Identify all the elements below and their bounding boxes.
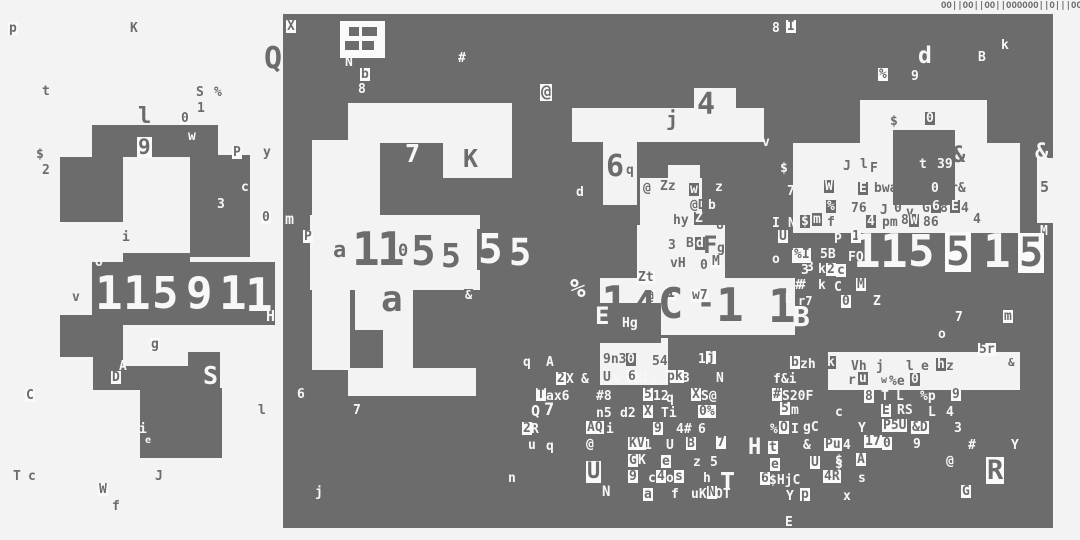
glyph: 1 — [95, 270, 123, 316]
dark-block — [140, 388, 222, 458]
glyph: g — [150, 338, 160, 351]
glyph: E — [858, 182, 868, 195]
glyph: j — [315, 486, 323, 499]
glyph: Z — [873, 295, 881, 308]
glyph: e — [921, 360, 929, 373]
glyph: 2 — [42, 164, 50, 177]
glyph: 9 — [951, 388, 961, 401]
glyph: k — [1001, 39, 1009, 52]
glyph: R — [531, 423, 539, 436]
glyph: 2 — [556, 372, 566, 385]
glyph: 3 — [668, 239, 676, 252]
glyph: K — [130, 22, 138, 35]
glyph: & — [464, 289, 473, 301]
glyph: OT — [715, 488, 731, 501]
glyph: C — [834, 281, 842, 294]
glyph: w — [689, 183, 699, 196]
glyph: F — [870, 162, 878, 175]
glyph: & — [1008, 357, 1015, 368]
glyph: # — [458, 52, 466, 65]
glyph: 4# — [676, 423, 692, 436]
glyph: 1 — [698, 353, 706, 366]
dark-block — [60, 315, 93, 357]
glyph: O — [779, 421, 789, 434]
glyph: d — [918, 45, 932, 68]
glyph: 7 — [544, 402, 554, 419]
glyph: U — [666, 439, 674, 452]
glyph: 7 — [716, 436, 726, 449]
glyph: J — [843, 160, 851, 173]
glyph: 5 — [152, 272, 179, 316]
glyph: t — [768, 441, 778, 454]
glyph: 54 — [652, 355, 668, 368]
glyph: 8 — [772, 22, 780, 35]
glyph: 0 — [398, 243, 408, 260]
glyph: e — [145, 436, 151, 446]
glyph: $ — [36, 148, 44, 161]
glyph: 3 — [801, 264, 809, 277]
glyph: x — [843, 490, 851, 503]
glyph: $ — [800, 215, 810, 228]
glyph: 1 — [123, 270, 151, 316]
glyph: H — [748, 437, 761, 459]
glyph: e — [661, 455, 671, 468]
glyph: 39 — [936, 158, 954, 171]
glyph: y — [263, 146, 271, 159]
glyph: T — [881, 390, 889, 403]
glyph: q — [523, 356, 531, 369]
glyph: t — [918, 158, 928, 171]
glyph: 6 — [297, 388, 305, 401]
glyph: 3 — [217, 198, 225, 211]
glyph: p — [800, 488, 810, 501]
glyph: U — [586, 461, 601, 483]
glyph: 5 — [643, 388, 653, 401]
glyph: A — [856, 453, 866, 466]
glyph: P5U — [882, 419, 907, 432]
glyph: % — [770, 423, 778, 436]
glyph: gC — [803, 421, 819, 434]
glyph: 0 — [882, 437, 892, 450]
glyph: t — [42, 85, 50, 98]
dark-block — [92, 125, 218, 157]
glyph: 9 — [628, 470, 638, 483]
glyph: & — [581, 373, 589, 386]
glyph: 5 — [908, 230, 935, 274]
glyph: N — [345, 56, 353, 69]
glyph: S — [203, 363, 218, 388]
light-block — [348, 103, 512, 143]
glyph: uK — [691, 488, 707, 501]
glyph: B — [686, 237, 694, 250]
glyph: D — [785, 293, 793, 306]
glyph: b — [360, 68, 370, 81]
glyph: 9 — [913, 438, 921, 451]
glyph: k — [818, 263, 826, 276]
glyph: 5 — [508, 234, 532, 271]
glyph: C — [25, 389, 35, 402]
glyph: # — [795, 279, 803, 292]
glyph: c — [28, 470, 36, 483]
glyph: s — [858, 472, 866, 485]
glyph: M — [1040, 225, 1048, 238]
glyph: 0% — [698, 405, 716, 418]
glyph: 7 — [787, 185, 795, 198]
glyph: X — [643, 405, 653, 418]
glyph: o — [666, 472, 674, 485]
glyph: a — [333, 240, 346, 262]
window-pane — [345, 41, 359, 50]
glyph: o — [938, 328, 946, 341]
glyph: @ — [540, 84, 552, 101]
glyph: I — [786, 20, 796, 33]
glyph: a — [643, 488, 653, 501]
glyph: 8 — [358, 83, 366, 96]
glyph: $ — [835, 458, 843, 471]
glyph: u — [858, 372, 868, 385]
glyph: a — [381, 282, 403, 318]
glyph: G — [922, 202, 930, 215]
glyph: E — [595, 304, 609, 328]
glyph: RS — [897, 404, 913, 417]
glyph: 0 — [700, 259, 708, 272]
glyph: zh — [800, 358, 816, 371]
glyph: &Ly — [635, 372, 658, 385]
glyph: 4 — [697, 90, 715, 120]
glyph: $HjC — [769, 474, 800, 487]
glyph: 5 — [1040, 180, 1049, 195]
glyph: b — [707, 199, 717, 212]
glyph: 1 — [983, 228, 1011, 274]
glyph: 7 — [353, 404, 361, 417]
glyph: S@ — [701, 390, 717, 403]
glyph: 1 — [219, 270, 247, 316]
glyph: 5 — [441, 239, 461, 272]
glyph: 5r — [978, 343, 996, 356]
glyph: T — [13, 470, 21, 483]
glyph: E — [881, 404, 891, 417]
glyph: 5 — [780, 402, 790, 415]
glyph: 9n3 — [603, 353, 626, 366]
glyph: v — [72, 291, 80, 304]
glyph: & — [952, 145, 965, 167]
glyph: W — [98, 483, 108, 496]
glyph: f — [827, 216, 835, 229]
glyph: 9 — [137, 137, 152, 158]
glyph: z — [693, 456, 701, 469]
glyph: #8 — [596, 390, 612, 403]
glyph: X — [286, 20, 296, 33]
glyph: v — [613, 372, 621, 385]
glyph: r& — [950, 182, 966, 195]
glyph: D — [111, 371, 121, 384]
glyph: &D — [911, 421, 929, 434]
glyph: Q — [531, 404, 540, 419]
glitch-canvas: pKtS%1l0w$29Pyc30iovgADSCieJlTcWfQ115911… — [0, 0, 1080, 540]
glyph: - — [697, 289, 715, 319]
glyph: E — [950, 200, 960, 213]
glyph: # — [968, 439, 976, 452]
glyph: 76 — [851, 202, 867, 215]
glyph: j — [706, 351, 716, 364]
glyph: H — [266, 309, 275, 324]
glyph: 9 — [186, 272, 213, 316]
glyph: 5B — [820, 248, 836, 261]
glyph: l — [860, 158, 868, 171]
glyph: @ — [946, 455, 954, 468]
glyph: & — [803, 439, 811, 452]
glyph: & — [1035, 142, 1048, 164]
glyph: w — [881, 376, 887, 386]
glyph: u — [528, 439, 536, 452]
glyph: K — [638, 454, 646, 467]
glyph: 8 — [716, 219, 724, 232]
glyph: W — [896, 160, 904, 173]
glyph: X — [691, 388, 701, 401]
glyph: 5 — [710, 456, 718, 469]
glyph: b — [790, 356, 800, 369]
glyph: S — [196, 86, 204, 99]
glyph: 0 — [626, 353, 636, 366]
glyph: 8 — [864, 390, 874, 403]
glyph: X — [566, 373, 574, 386]
glyph: m — [1003, 310, 1013, 323]
glyph: N — [602, 485, 610, 499]
glyph: % — [570, 276, 586, 302]
glyph: %e — [889, 375, 905, 388]
glyph: M — [711, 255, 721, 268]
glyph: c — [835, 406, 843, 419]
glyph: 0 — [261, 211, 271, 224]
glyph: K — [463, 146, 478, 171]
glyph: q — [626, 164, 634, 177]
glyph: Z — [694, 212, 704, 225]
glyph: P — [834, 233, 842, 246]
glyph: v — [762, 136, 770, 149]
window-pane — [362, 27, 377, 36]
glyph: 4 — [843, 439, 851, 452]
glyph: r7 — [798, 295, 812, 307]
window-pane — [349, 27, 359, 36]
glyph: P — [232, 146, 242, 159]
glyph: N — [788, 217, 796, 230]
glyph: z — [946, 360, 954, 373]
glyph: 5 — [945, 232, 971, 272]
glyph: 1 — [644, 439, 652, 452]
glyph: l — [258, 404, 266, 417]
glyph: B — [978, 51, 986, 64]
glyph: i — [122, 231, 130, 244]
light-block — [348, 368, 476, 396]
glyph: c — [241, 181, 249, 194]
glyph: r — [848, 374, 856, 387]
glyph: OO||OO||OO||OOOOOO||O|||OO||OO|O — [941, 2, 1080, 11]
glyph: 1 — [880, 228, 908, 274]
glyph: U — [603, 371, 611, 384]
glyph: $ — [890, 115, 898, 128]
glyph: f&i — [773, 373, 796, 386]
glyph: 1 — [853, 228, 881, 274]
glyph: W — [824, 180, 834, 193]
glyph: h — [936, 358, 946, 371]
glyph: % — [826, 200, 836, 213]
glyph: j — [876, 360, 884, 373]
glyph: 4 — [656, 470, 666, 483]
glyph: 8 — [940, 202, 948, 215]
glyph: Q — [264, 44, 282, 74]
glyph: U — [810, 456, 820, 469]
glyph: 0 — [180, 112, 190, 125]
glyph: d2 — [620, 407, 636, 420]
glyph: c — [648, 472, 656, 485]
glyph: %p — [920, 390, 936, 403]
glyph: d — [576, 186, 584, 199]
glyph: C — [658, 283, 683, 325]
glyph: n5 — [596, 407, 612, 420]
light-block — [383, 325, 413, 370]
glyph: KV — [628, 437, 646, 450]
glyph: M — [856, 278, 866, 291]
dark-block — [92, 325, 123, 355]
glyph: AQ — [586, 421, 604, 434]
glyph: G — [961, 485, 971, 498]
glyph: L — [928, 406, 936, 419]
dark-block — [413, 290, 443, 325]
glyph: P — [303, 230, 313, 243]
glyph: $ — [780, 162, 788, 175]
glyph: 6 — [606, 152, 624, 182]
glyph: 1 — [352, 226, 380, 272]
glyph: m — [812, 213, 822, 226]
glyph: E — [785, 516, 793, 529]
glyph: z — [714, 181, 724, 194]
glyph: 17 — [864, 435, 882, 448]
glyph: m — [791, 404, 799, 417]
glyph: 3 — [682, 372, 690, 385]
glyph: l — [138, 106, 151, 128]
glyph: Y — [786, 490, 794, 503]
window-pane — [362, 41, 374, 50]
glyph: % — [878, 68, 888, 81]
glyph: h — [703, 472, 711, 485]
glyph: Zz — [660, 180, 676, 193]
glyph: J — [155, 470, 163, 483]
glyph: L — [896, 390, 904, 403]
glyph: pk — [666, 370, 684, 383]
glyph: 7 — [405, 141, 420, 166]
glyph: A — [546, 356, 554, 369]
glyph: w — [188, 130, 196, 143]
glyph: f — [671, 488, 679, 501]
glyph: Y — [1011, 439, 1019, 452]
glyph: 0 — [925, 112, 935, 125]
glyph: 1 — [716, 282, 744, 328]
glyph: k — [818, 279, 826, 292]
glyph: 0 — [930, 182, 940, 195]
glyph: 5 — [411, 231, 436, 272]
glyph: 0 — [841, 295, 851, 308]
glyph: R — [986, 457, 1004, 484]
glyph: 4 — [946, 406, 954, 419]
glyph: 4 — [961, 202, 969, 215]
glyph: c — [836, 264, 846, 277]
glyph: bwa — [874, 182, 897, 195]
dark-block — [60, 157, 123, 222]
glyph: f — [112, 500, 120, 513]
glyph: 3 — [954, 422, 962, 435]
glyph: 4 — [973, 213, 981, 226]
glyph: n — [508, 472, 516, 485]
glyph: q — [666, 392, 674, 405]
glyph: 6 — [698, 423, 706, 436]
glyph: 9 — [653, 422, 663, 435]
glyph: @ — [586, 438, 594, 451]
glyph: @ — [643, 182, 651, 195]
glyph: 2 — [826, 263, 836, 276]
glyph: hy — [673, 214, 689, 227]
glyph: vH — [670, 257, 686, 270]
glyph: e — [770, 458, 780, 471]
glyph: 7 — [955, 311, 963, 324]
glyph: q — [546, 440, 554, 453]
glyph: # — [772, 388, 782, 401]
glyph: k — [826, 356, 836, 369]
glyph: Pu — [824, 438, 842, 451]
glyph: i — [606, 423, 614, 436]
glyph: Ti — [661, 407, 677, 420]
glyph: 5 — [1018, 233, 1044, 273]
glyph: N — [716, 372, 724, 385]
glyph: s — [674, 470, 684, 483]
glyph: 5 — [477, 229, 504, 270]
glyph: B — [686, 437, 696, 450]
glyph: Hg — [622, 317, 638, 330]
glyph: 0 — [910, 373, 920, 386]
glyph: I — [791, 423, 799, 436]
glyph: % — [214, 86, 222, 99]
glyph: 9 — [911, 70, 919, 83]
glyph: %I — [793, 248, 811, 261]
glyph: G — [628, 454, 638, 467]
glyph: m — [285, 212, 294, 227]
glyph: o — [772, 253, 780, 266]
glyph: 1 — [197, 102, 205, 115]
glyph: p — [8, 22, 18, 35]
glyph: j — [666, 109, 678, 129]
glyph: U — [778, 230, 788, 243]
